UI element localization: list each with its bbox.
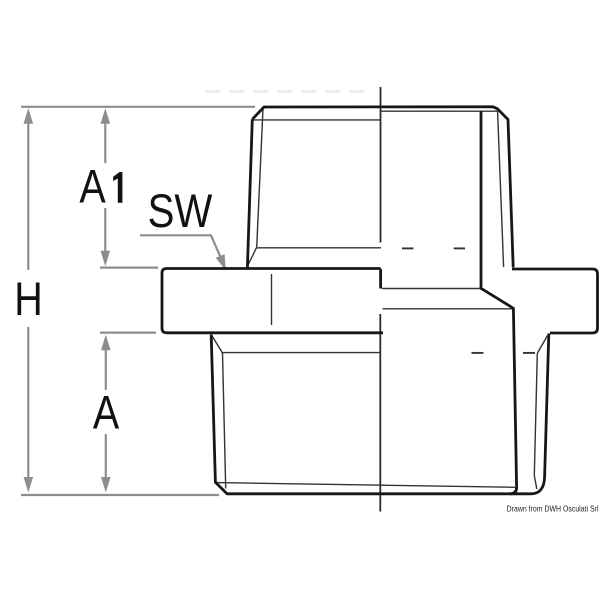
svg-text:Drawn from DWH Osculati Srl: Drawn from DWH Osculati Srl bbox=[507, 504, 599, 514]
svg-text:A: A bbox=[93, 387, 119, 439]
svg-text:SW: SW bbox=[148, 185, 213, 238]
svg-text:A: A bbox=[79, 161, 105, 213]
svg-text:H: H bbox=[14, 274, 43, 326]
